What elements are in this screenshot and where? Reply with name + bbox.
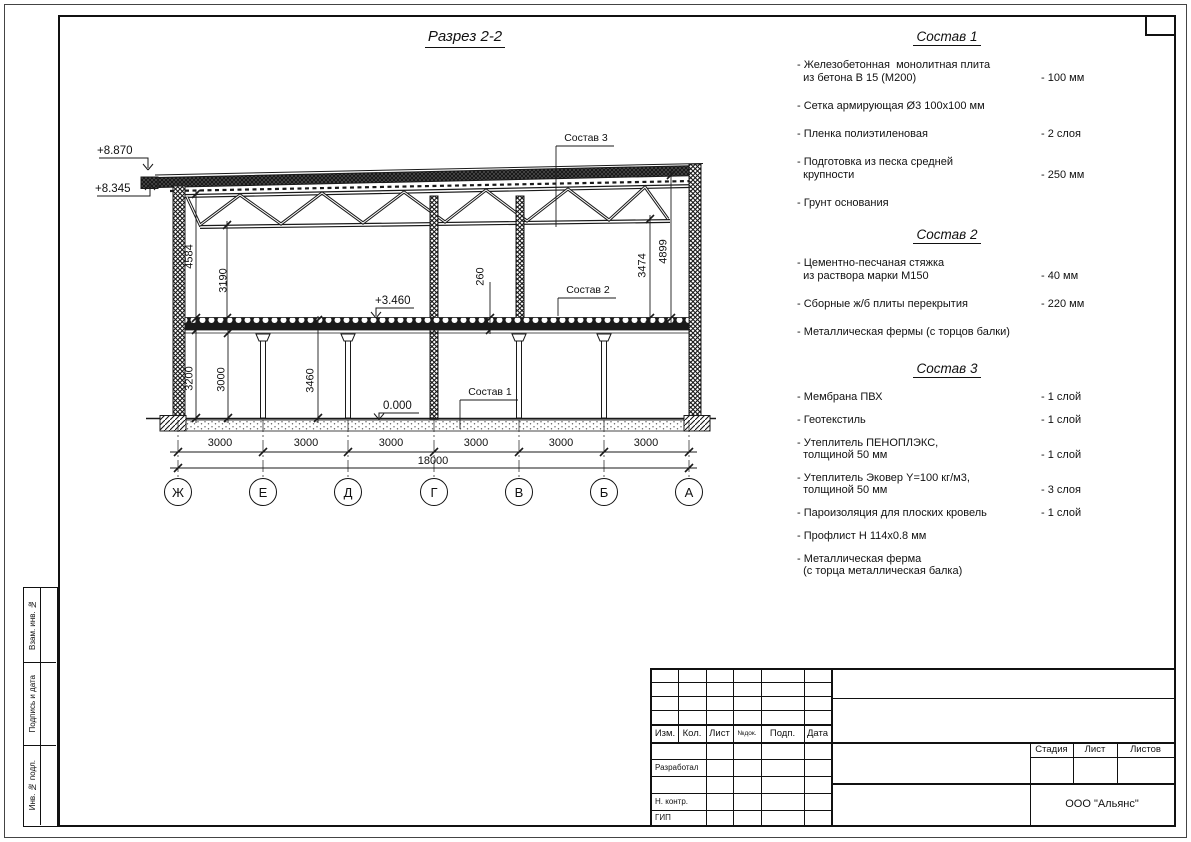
dim-bay-4: 3000 [446,437,506,450]
dim-bay-6: 3000 [616,437,676,450]
axis-bubble-zh: Ж [164,478,192,506]
frame-sidebar: Взам. инв. № Подпись и дата Инв. № подл. [23,587,58,827]
view-title: Разрез 2-2 [400,28,530,48]
axis-bubble-v: В [505,478,533,506]
spec-item-name: - Металлическая ферма (с торца металличе… [797,553,1041,577]
tb-company: ООО "Альянс" [1030,783,1174,825]
tb-col-list2: Лист [1073,742,1117,757]
spec-item-name: - Металлическая фермы (с торцов балки) [797,326,1041,339]
elevation-mark-zero: 0.000 [383,400,412,412]
spec-item: - Грунт основания [797,197,1097,210]
spec-item-name: - Геотекстиль [797,414,1041,426]
spec-item: - Профлист Н 114х0.8 мм [797,530,1097,542]
spec-item: - Пароизоляция для плоских кровель - 1 с… [797,507,1097,519]
tb-col-list: Лист [706,724,733,742]
spec-item-value: - 100 мм [1041,72,1084,85]
spec-item: - Пленка полиэтиленовая - 2 слоя [797,128,1097,141]
spec-item-value: - 2 слоя [1041,128,1081,141]
tb-col-data: Дата [804,724,831,742]
dim-260: 260 [475,242,488,312]
dim-bay-5: 3000 [531,437,591,450]
spec-item: - Мембрана ПВХ - 1 слой [797,391,1097,403]
axis-bubble-b: Б [590,478,618,506]
axis-letter: Ж [172,485,184,500]
spec-item-name: - Грунт основания [797,197,1041,210]
sidebar-cell-podpis: Подпись и дата [24,662,40,745]
axis-letter: Г [430,485,437,500]
spec-item: - Цементно-песчаная стяжка из раствора м… [797,257,1097,283]
dim-bay-3: 3000 [361,437,421,450]
spec-list-2: Состав 2 - Цементно-песчаная стяжка из р… [797,226,1097,354]
axis-bubble-g: Г [420,478,448,506]
spec-item-value: - 3 слоя [1041,484,1081,496]
tb-col-kol: Кол. [678,724,706,742]
spec-item-value: - 1 слой [1041,449,1081,461]
dim-bay-1: 3000 [190,437,250,450]
axis-letter: Е [259,485,268,500]
spec-item-value: - 1 слой [1041,414,1081,426]
axis-letter: Б [600,485,609,500]
spec-item-value: - 1 слой [1041,391,1081,403]
spec-item: - Металлическая ферма (с торца металличе… [797,553,1097,577]
spec-item: - Железобетонная монолитная плита из бет… [797,59,1097,85]
dim-4899: 4899 [658,217,671,287]
dim-3000-v: 3000 [216,345,229,415]
tb-col-ndok: №док. [733,724,761,742]
dim-3200: 3200 [184,344,197,414]
spec-item-name: - Пароизоляция для плоских кровель [797,507,1041,519]
tb-row-nkontr: Н. контр. [652,793,706,810]
dim-3190: 3190 [218,246,231,316]
spec-item: - Подготовка из песка средней крупности … [797,156,1097,182]
sidebar-cell-vzam: Взам. инв. № [24,588,40,662]
tb-row-razrabotal: Разработал [652,759,706,776]
spec-item: - Металлическая фермы (с торцов балки) [797,326,1097,339]
spec-item-name: - Подготовка из песка средней крупности [797,156,1041,182]
dim-3474: 3474 [637,231,650,301]
dim-3460: 3460 [305,346,318,416]
spec-item: - Утеплитель Эковер Y=100 кг/м3, толщино… [797,472,1097,496]
spec-title: Состав 1 [797,28,1097,46]
axis-letter: А [685,485,694,500]
tb-col-stadia: Стадия [1030,742,1073,757]
callout-sostav-1: Состав 1 [460,386,520,398]
tb-col-listov: Листов [1117,742,1174,757]
spec-list-3: Состав 3 - Мембрана ПВХ - 1 слой - Геоте… [797,360,1097,588]
spec-item-name: - Мембрана ПВХ [797,391,1041,403]
spec-item: - Утеплитель ПЕНОПЛЭКС, толщиной 50 мм -… [797,437,1097,461]
elevation-mark-roof-top: +8.870 [97,145,133,157]
axis-bubble-a: А [675,478,703,506]
spec-item-name: - Сборные ж/б плиты перекрытия [797,298,1041,311]
dim-4584: 4584 [184,222,197,292]
axis-bubble-d: Д [334,478,362,506]
spec-item-name: - Железобетонная монолитная плита из бет… [797,59,1041,85]
spec-item-name: - Пленка полиэтиленовая [797,128,1041,141]
spec-item: - Сборные ж/б плиты перекрытия - 220 мм [797,298,1097,311]
tb-row-gip: ГИП [652,810,706,825]
spec-item: - Сетка армирующая Ø3 100х100 мм [797,100,1097,113]
callout-sostav-3: Состав 3 [556,132,616,144]
spec-item-value: - 1 слой [1041,507,1081,519]
spec-item: - Геотекстиль - 1 слой [797,414,1097,426]
spec-title: Состав 2 [797,226,1097,244]
dim-bay-2: 3000 [276,437,336,450]
title-block: Изм. Кол. Лист №док. Подп. Дата Разработ… [650,668,1176,827]
tb-col-podp: Подп. [761,724,804,742]
spec-item-value: - 220 мм [1041,298,1084,311]
axis-letter: Д [344,485,353,500]
callout-sostav-2: Состав 2 [558,284,618,296]
drawing-sheet: Разрез 2-2 +8.870 +8.345 +3.460 0.000 45… [0,0,1191,842]
spec-item-value: - 250 мм [1041,169,1084,182]
elevation-mark-floor: +3.460 [375,295,411,307]
tb-col-izm: Изм. [652,724,678,742]
sidebar-cell-inv: Инв. № подл. [24,745,40,825]
spec-item-value: - 40 мм [1041,270,1078,283]
spec-title: Состав 3 [797,360,1097,378]
spec-item-name: - Профлист Н 114х0.8 мм [797,530,1041,542]
elevation-mark-roof-bottom: +8.345 [95,183,131,195]
axis-bubble-e: Е [249,478,277,506]
spec-item-name: - Утеплитель Эковер Y=100 кг/м3, толщино… [797,472,1041,496]
spec-list-1: Состав 1 - Железобетонная монолитная пли… [797,28,1097,225]
spec-item-name: - Сетка армирующая Ø3 100х100 мм [797,100,1041,113]
dim-total: 18000 [403,455,463,468]
axis-letter: В [515,485,524,500]
spec-item-name: - Утеплитель ПЕНОПЛЭКС, толщиной 50 мм [797,437,1041,461]
spec-item-name: - Цементно-песчаная стяжка из раствора м… [797,257,1041,283]
